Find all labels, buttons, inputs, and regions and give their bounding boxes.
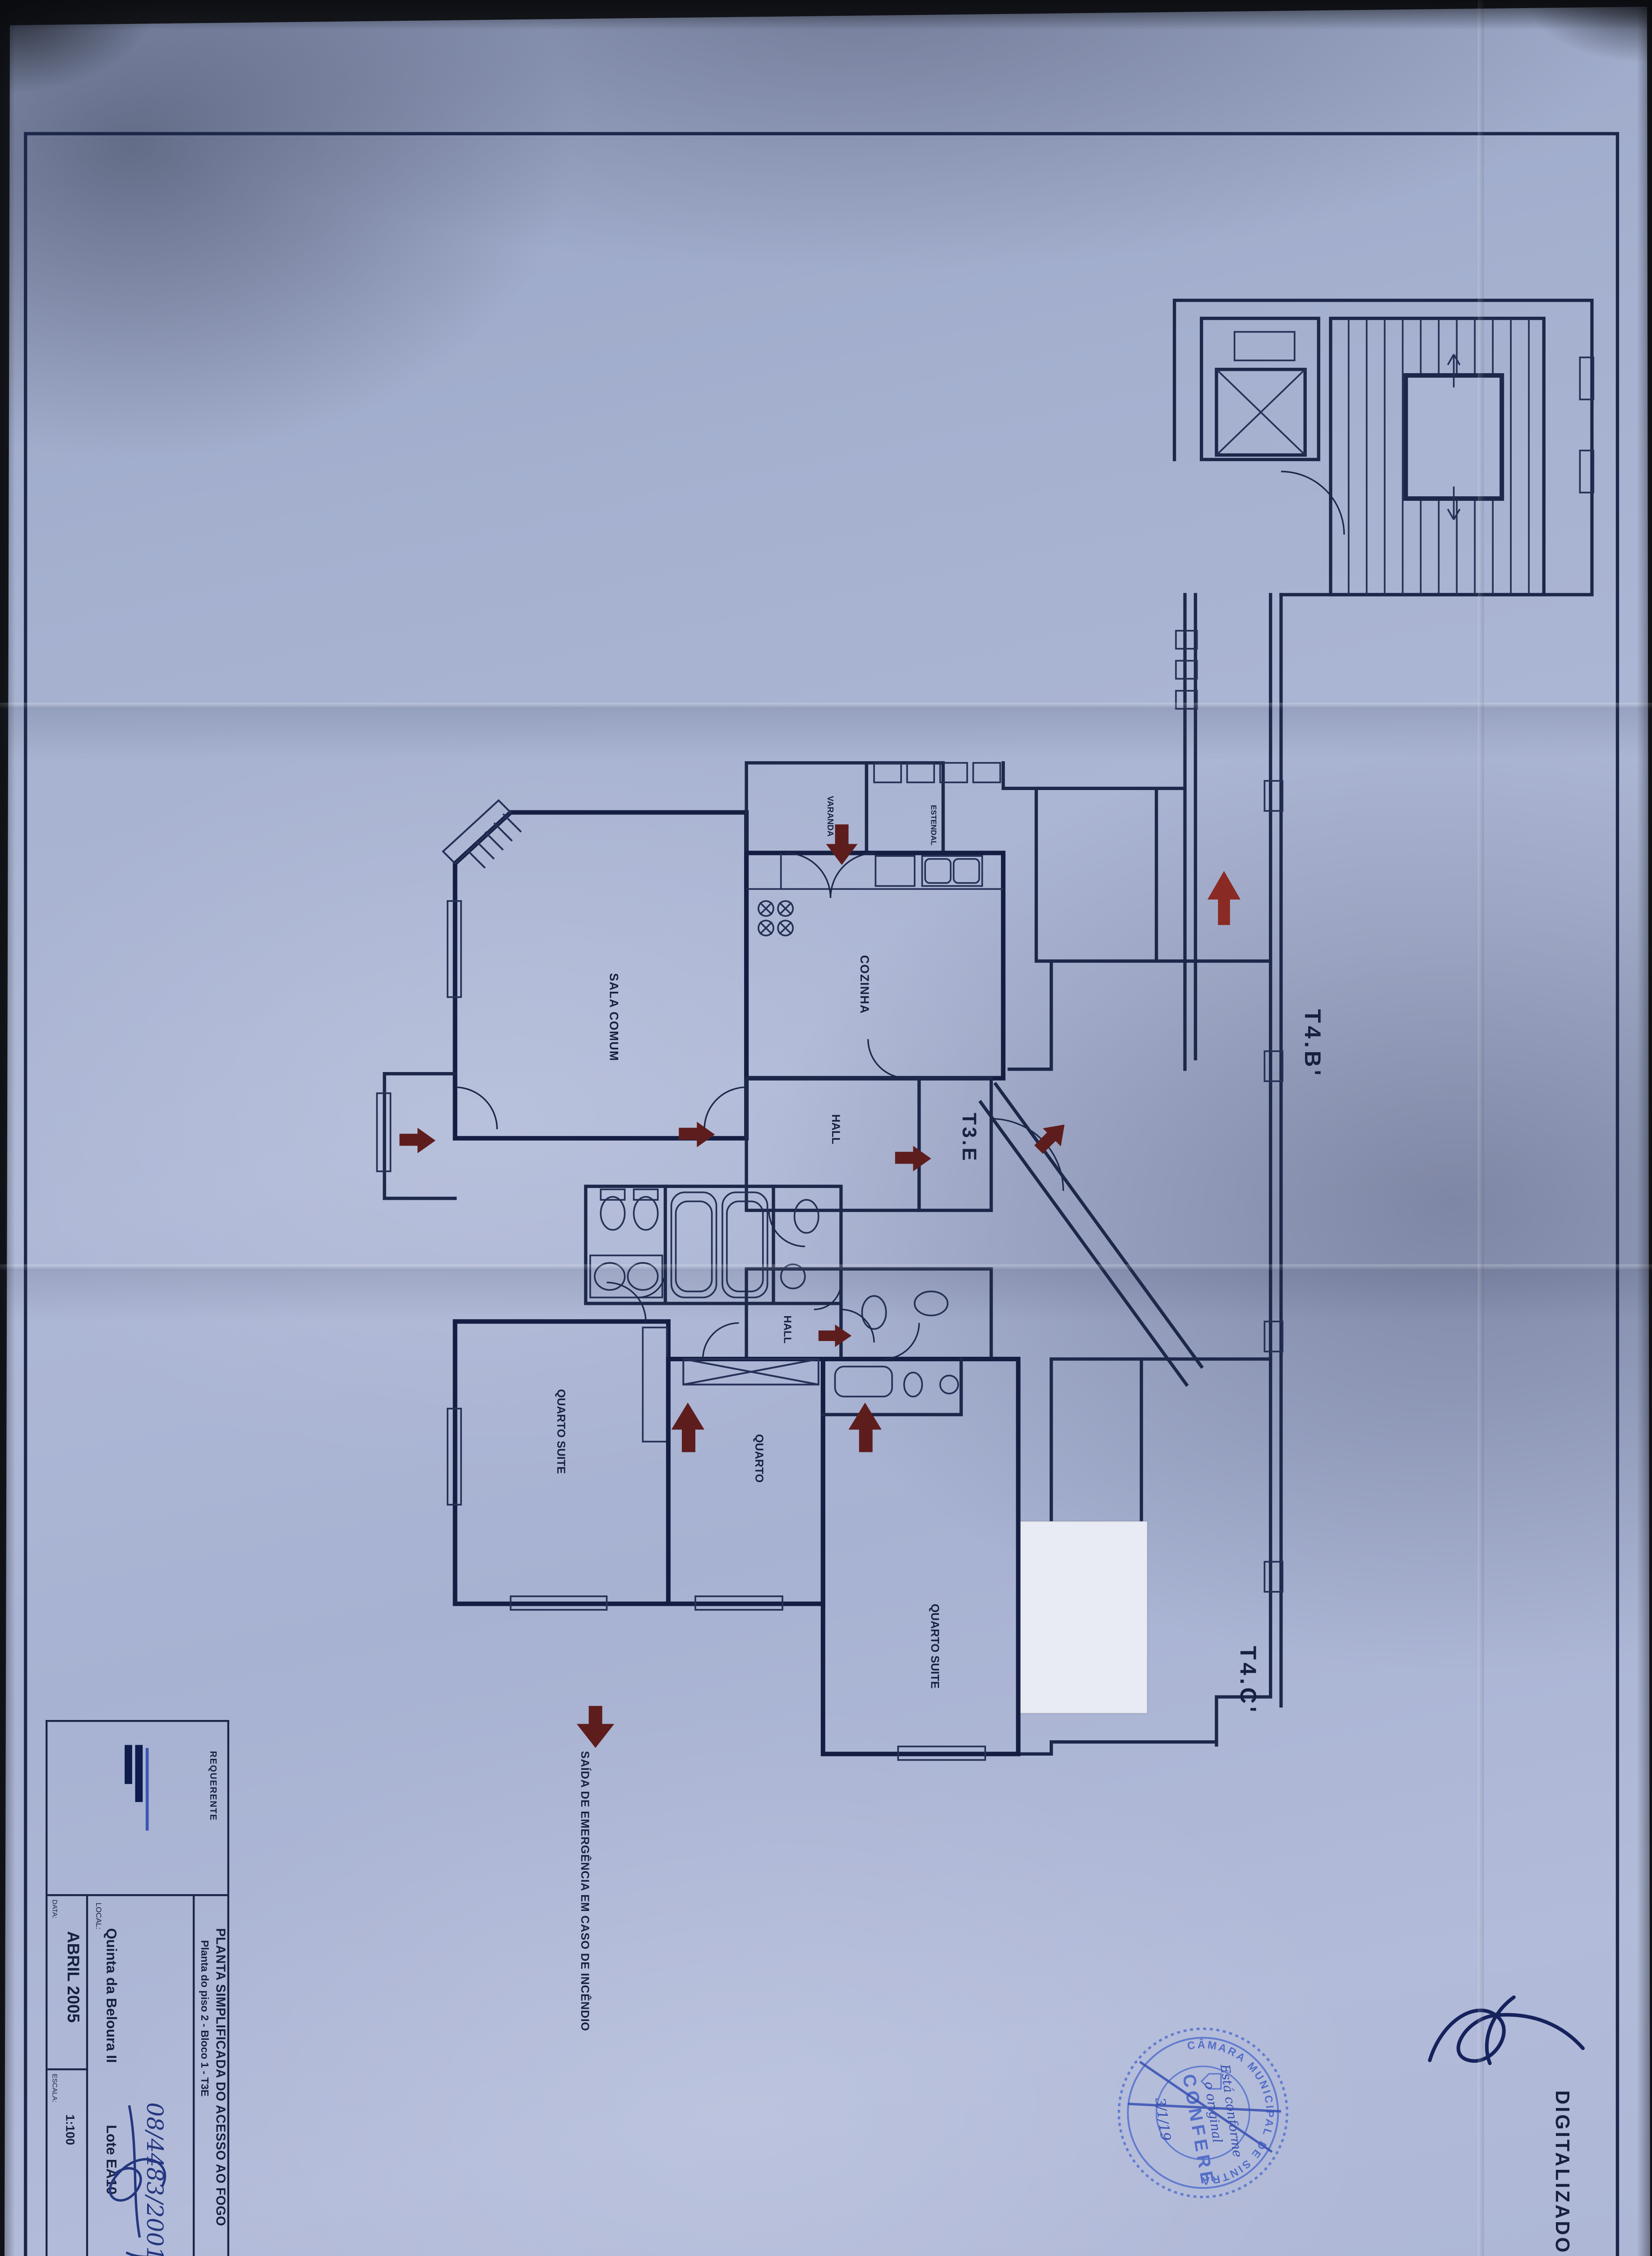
label-emergency-exit-note: SAÍDA DE EMERGÊNCIA EM CASO DE INCÊNDIO — [578, 1751, 592, 2031]
bathtub-1-icon — [671, 1193, 717, 1298]
title-block-data-label: DATA: — [51, 1900, 58, 1919]
sink-icon — [925, 859, 951, 883]
elevator-x-icon — [1217, 370, 1305, 455]
burners-icon — [759, 901, 793, 936]
label-unit-t4b: T4.B' — [1300, 1009, 1325, 1078]
title-block-subtitle: Planta do piso 2 - Bloco 1 - T3E — [199, 1940, 211, 2097]
arrow-hall2 — [819, 1324, 851, 1347]
digitalizado-label: DIGITALIZADO — [1551, 2090, 1573, 2255]
lobby-diagonal-wall — [981, 1084, 1201, 1385]
room-quarto-suite-bottom — [823, 1359, 1018, 1754]
service-wc — [841, 1269, 991, 1359]
sink-right-icon — [628, 1263, 658, 1290]
label-quarto: QUARTO — [753, 1434, 765, 1483]
title-block-title: PLANTA SIMPLIFICADA DO ACESSO AO FOGO — [213, 1928, 228, 2226]
bidet-icon — [634, 1197, 658, 1230]
title-block-escala-label: ESCALA: — [51, 2074, 58, 2102]
arrow-corridor-up — [1208, 871, 1240, 925]
drawing-frame — [26, 134, 1618, 2256]
title-block-escala-value: 1:100 — [63, 2114, 77, 2145]
label-estendal: ESTENDAL — [929, 805, 938, 846]
label-sala-comum: SALA COMUM — [607, 973, 620, 1062]
kitchen-double-door-arc — [786, 853, 876, 898]
arrow-emergency-exit — [577, 1706, 614, 1748]
core-door-arc — [1281, 472, 1344, 535]
title-block-local-label: LOCAL: — [94, 1903, 103, 1929]
label-unit-t3e: T3.E — [958, 1113, 980, 1163]
title-block-requerente-label: REQUERENTE — [208, 1751, 218, 1821]
room-hall2 — [746, 1269, 841, 1359]
arrow-hall-entry — [895, 1146, 931, 1171]
title-block-local-value: Quinta da Beloura II — [103, 1928, 120, 2063]
label-quarto-suite-left: QUARTO SUITE — [555, 1389, 567, 1474]
stamp-date-note: 3/1/19 — [1152, 2097, 1174, 2142]
stove-icon — [875, 856, 915, 886]
unit-t3e-walls — [377, 763, 1063, 1760]
unit-t4b-walls — [981, 763, 1270, 1385]
arrow-porch — [399, 1128, 435, 1153]
scanned-floorplan-photo: SALA COMUM COZINHA VARANDA ESTENDAL HALL… — [0, 0, 1652, 2256]
label-hall2: HALL — [782, 1316, 793, 1344]
label-unit-t4c: T4.C' — [1236, 1646, 1261, 1715]
toilet-icon — [601, 1197, 625, 1230]
label-cozinha: COZINHA — [858, 955, 871, 1014]
arrow-quarto-up — [671, 1403, 704, 1452]
label-quarto-suite-bottom: QUARTO SUITE — [928, 1604, 941, 1689]
title-block: REQUERENTE PLANTA SIMPLIFICADA DO ACESSO… — [46, 1721, 228, 2256]
wardrobe-hatch — [683, 1359, 819, 1385]
sink-left-icon — [595, 1263, 625, 1290]
entry-vestibule — [919, 1078, 991, 1211]
label-hall: HALL — [829, 1114, 842, 1145]
arrow-suite-up — [848, 1403, 881, 1452]
gallery-corridor — [1176, 595, 1282, 1745]
arrow-sala-hall — [679, 1122, 715, 1147]
label-varanda: VARANDA — [826, 796, 835, 837]
municipal-stamp: CÂMARA MUNICIPAL DE SINTRA CONFERE Está … — [1119, 2029, 1287, 2197]
signature-scrawl — [1430, 1997, 1583, 2063]
room-sala — [455, 813, 746, 1138]
room-quarto — [668, 1359, 823, 1604]
whiteout-patch — [1018, 1521, 1148, 1713]
title-block-data-value: ABRIL 2005 — [64, 1931, 83, 2023]
stair-core — [1175, 300, 1594, 595]
stair-landing — [1406, 375, 1502, 499]
